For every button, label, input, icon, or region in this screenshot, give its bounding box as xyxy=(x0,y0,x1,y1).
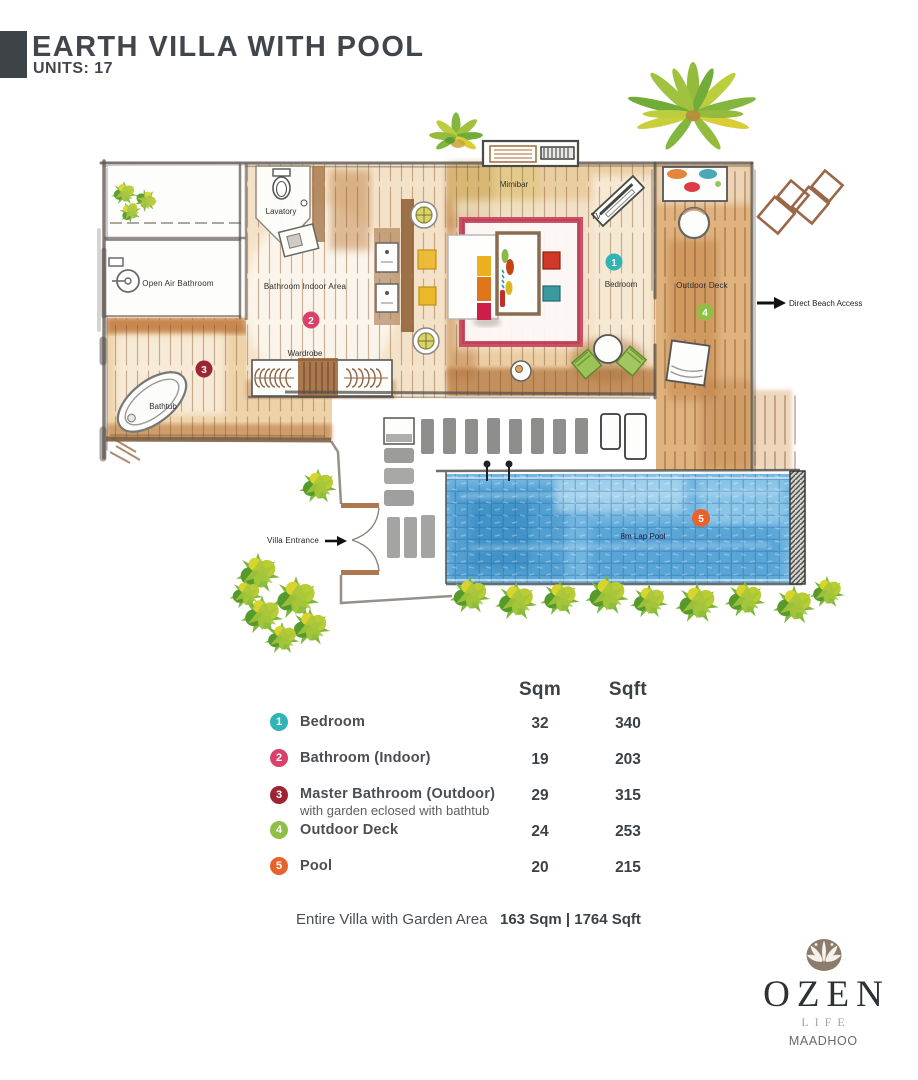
svg-text:8m Lap Pool: 8m Lap Pool xyxy=(621,532,666,541)
svg-text:Lavatory: Lavatory xyxy=(266,207,297,216)
svg-text:5: 5 xyxy=(698,514,704,525)
svg-text:Mimibar: Mimibar xyxy=(500,180,529,189)
svg-text:Open Air Bathroom: Open Air Bathroom xyxy=(142,279,214,288)
svg-text:Bedroom: Bedroom xyxy=(605,280,638,289)
svg-text:4: 4 xyxy=(702,308,708,319)
svg-text:Bathtub: Bathtub xyxy=(149,402,177,411)
svg-text:Direct Beach Access: Direct Beach Access xyxy=(789,299,862,308)
svg-text:Bathroom Indoor Area: Bathroom Indoor Area xyxy=(264,282,347,291)
svg-text:2: 2 xyxy=(308,316,314,327)
svg-text:TV: TV xyxy=(591,212,602,221)
svg-text:Outdoor Deck: Outdoor Deck xyxy=(676,281,729,290)
svg-text:Wardrobe: Wardrobe xyxy=(288,349,323,358)
svg-text:3: 3 xyxy=(201,365,207,376)
svg-text:Villa Entrance: Villa Entrance xyxy=(267,536,319,545)
svg-text:1: 1 xyxy=(611,258,617,269)
